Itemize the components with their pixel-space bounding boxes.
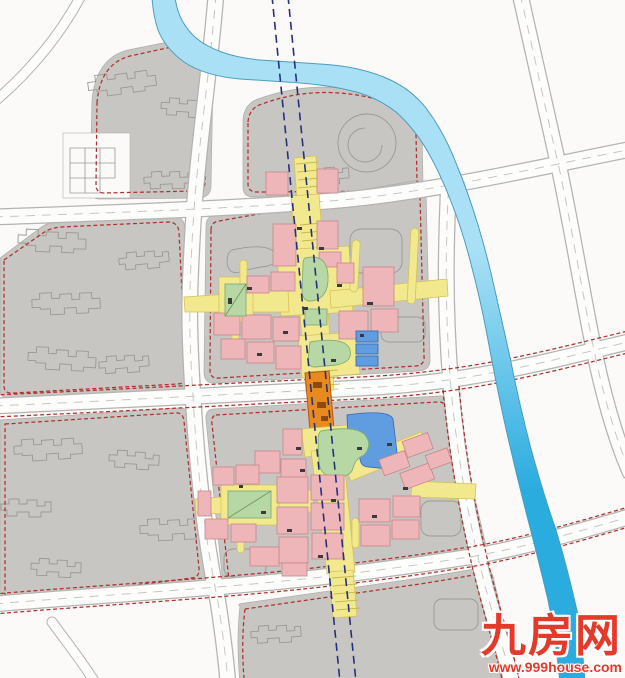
station-bridge [305, 371, 334, 431]
master-plan-svg [0, 0, 625, 678]
civic-buildings-blue [356, 331, 378, 366]
parcel-bottom-left [0, 408, 205, 607]
plan-map-canvas: 九房网 www.999house.com [0, 0, 625, 678]
